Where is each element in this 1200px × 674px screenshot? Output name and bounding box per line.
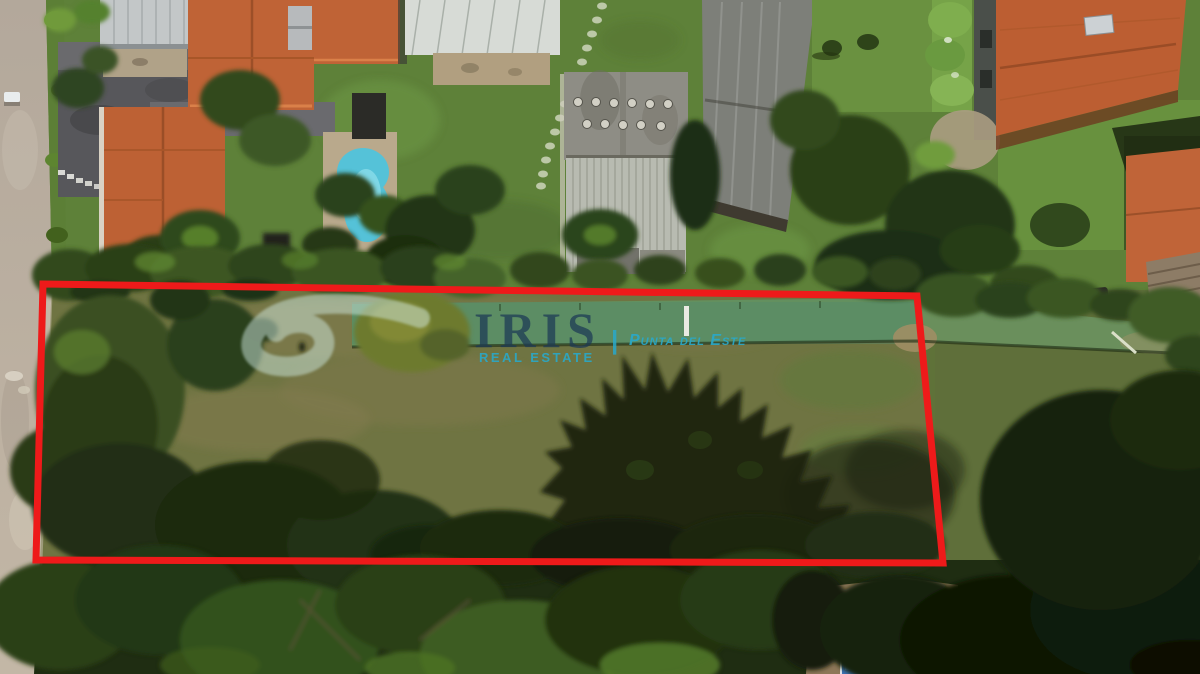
pergola (352, 93, 386, 139)
watermark-divider: | (611, 325, 618, 355)
watermark-tagline: REAL ESTATE (479, 350, 595, 365)
aerial-photo: IRIS REAL ESTATE | Punta del Este (0, 0, 1200, 674)
watermark-location: Punta del Este (629, 332, 746, 349)
parked-car (4, 92, 20, 102)
skylight (1084, 15, 1114, 36)
